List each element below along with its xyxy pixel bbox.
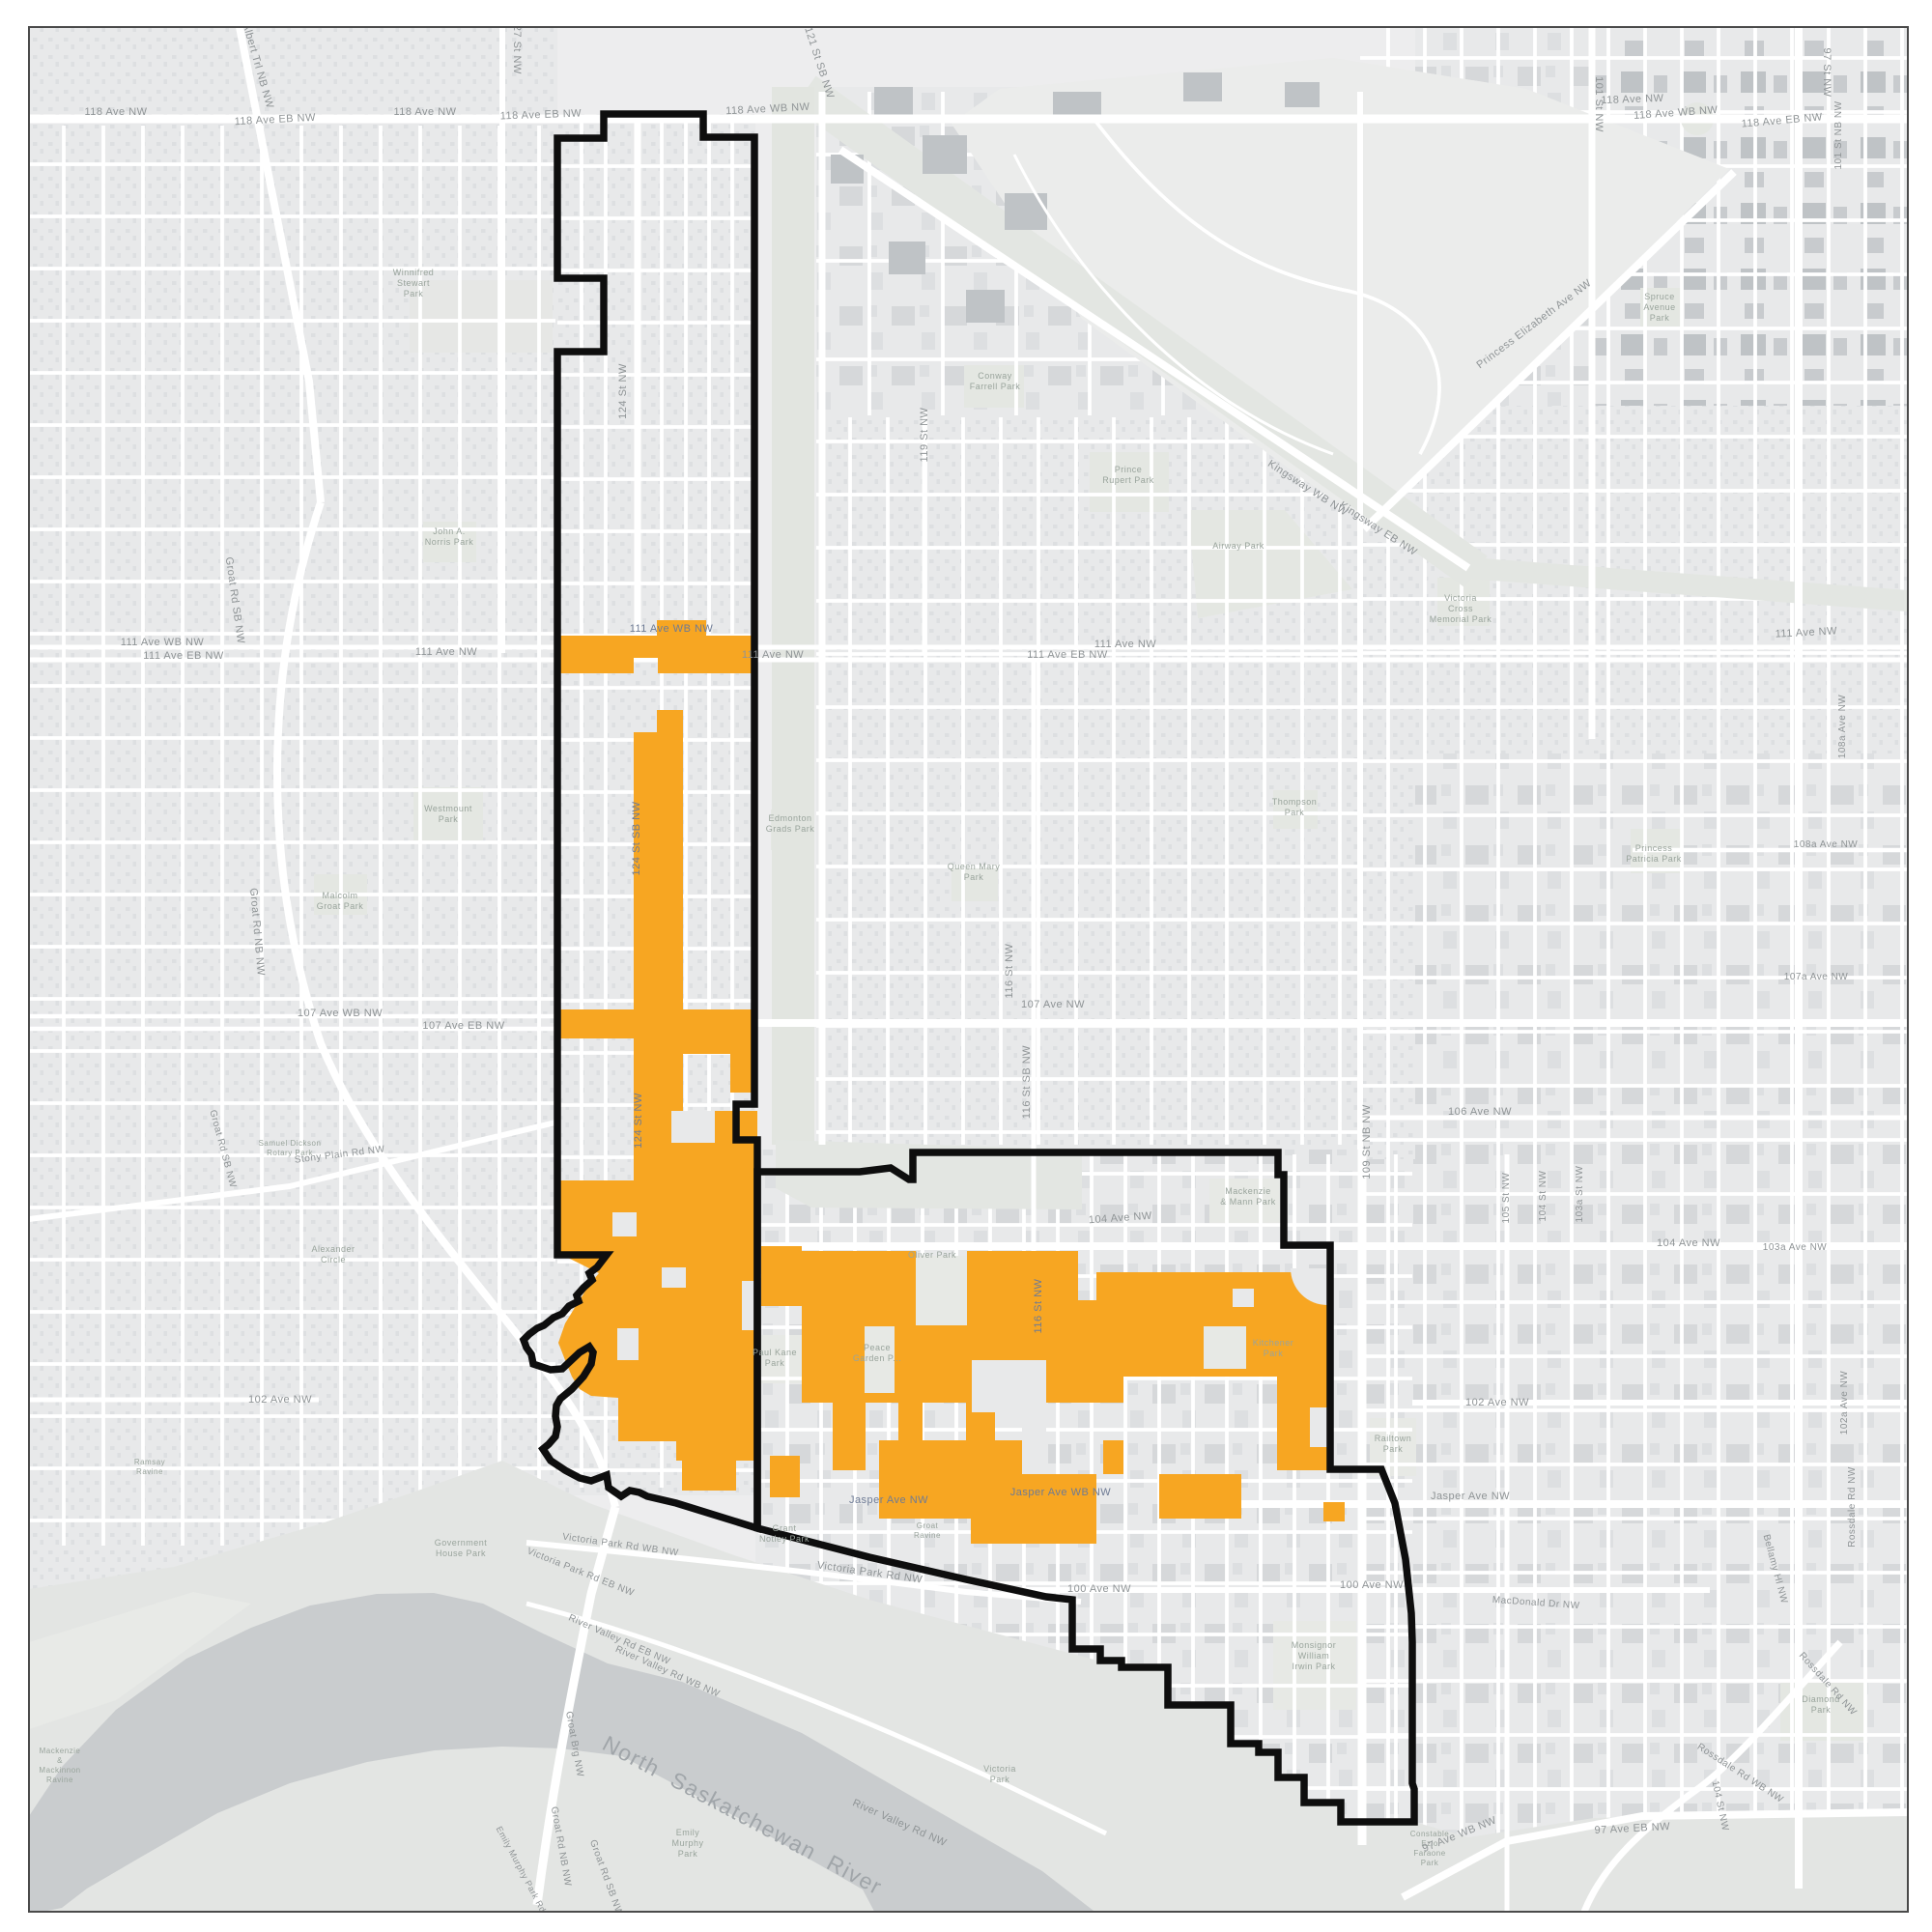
svg-text:Government: Government: [435, 1538, 488, 1548]
svg-text:Park: Park: [765, 1358, 785, 1368]
svg-text:100 Ave NW: 100 Ave NW: [1067, 1583, 1131, 1595]
svg-text:Ravine: Ravine: [46, 1776, 73, 1784]
svg-text:Spruce: Spruce: [1644, 292, 1675, 301]
svg-text:118 Ave NW: 118 Ave NW: [1601, 93, 1664, 106]
svg-text:106 Ave NW: 106 Ave NW: [1448, 1106, 1512, 1118]
svg-text:111 Ave NW: 111 Ave NW: [742, 649, 804, 661]
svg-text:Westmount: Westmount: [424, 804, 472, 813]
svg-text:Park: Park: [1285, 808, 1305, 817]
svg-text:124 St NW: 124 St NW: [617, 363, 629, 419]
svg-text:105 St NW: 105 St NW: [1501, 1173, 1512, 1224]
svg-text:House Park: House Park: [436, 1548, 486, 1558]
svg-text:Princess: Princess: [1635, 843, 1673, 853]
svg-text:103a St NW: 103a St NW: [1575, 1165, 1585, 1222]
svg-text:Airway Park: Airway Park: [1212, 541, 1264, 551]
svg-text:Park: Park: [1383, 1444, 1404, 1454]
svg-text:Memorial Park: Memorial Park: [1430, 614, 1492, 624]
svg-text:William: William: [1298, 1651, 1330, 1661]
svg-text:102 Ave NW: 102 Ave NW: [1465, 1397, 1529, 1408]
svg-text:Park: Park: [678, 1849, 698, 1859]
svg-text:Park: Park: [404, 289, 424, 298]
svg-text:100 Ave NW: 100 Ave NW: [1340, 1579, 1404, 1591]
svg-text:Ramsay: Ramsay: [134, 1458, 165, 1466]
svg-text:111 Ave EB NW: 111 Ave EB NW: [1027, 649, 1108, 661]
svg-text:108a Ave NW: 108a Ave NW: [1837, 695, 1848, 759]
svg-text:John A.: John A.: [433, 526, 466, 536]
svg-text:Conway: Conway: [978, 371, 1012, 381]
svg-text:124 St SB NW: 124 St SB NW: [631, 801, 642, 875]
svg-text:107 Ave EB NW: 107 Ave EB NW: [422, 1020, 504, 1032]
svg-text:Winnifred: Winnifred: [393, 268, 435, 277]
svg-text:116 St NW: 116 St NW: [1033, 1278, 1044, 1333]
svg-text:Thompson: Thompson: [1272, 797, 1318, 807]
svg-text:Grads Park: Grads Park: [766, 824, 815, 834]
svg-text:118 Ave NW: 118 Ave NW: [84, 106, 147, 118]
svg-text:124 St NW: 124 St NW: [633, 1093, 644, 1149]
svg-text:Victoria: Victoria: [983, 1764, 1016, 1774]
svg-text:Alexander: Alexander: [311, 1244, 355, 1254]
svg-text:Park: Park: [1264, 1349, 1284, 1358]
svg-text:111 Ave WB NW: 111 Ave WB NW: [630, 623, 714, 635]
svg-text:& Mann Park: & Mann Park: [1220, 1197, 1276, 1207]
svg-text:Cross: Cross: [1448, 604, 1473, 613]
svg-text:Queen Mary: Queen Mary: [948, 862, 1001, 871]
svg-text:Jasper Ave WB NW: Jasper Ave WB NW: [1010, 1487, 1111, 1498]
svg-text:111 Ave NW: 111 Ave NW: [415, 646, 477, 658]
svg-text:Garden P...: Garden P...: [853, 1353, 901, 1363]
svg-text:Monsignor: Monsignor: [1292, 1640, 1337, 1650]
svg-text:&: &: [57, 1756, 63, 1765]
svg-text:Edmonton: Edmonton: [768, 813, 811, 823]
svg-text:Rupert Park: Rupert Park: [1102, 475, 1154, 485]
svg-text:111 Ave WB NW: 111 Ave WB NW: [121, 637, 205, 648]
svg-text:Grant: Grant: [772, 1523, 796, 1533]
svg-text:Mackenzie: Mackenzie: [1225, 1186, 1271, 1196]
svg-text:Notley Park: Notley Park: [759, 1534, 810, 1544]
svg-text:119 St NW: 119 St NW: [919, 407, 930, 462]
svg-text:Prince: Prince: [1115, 465, 1143, 474]
svg-text:118 Ave NW: 118 Ave NW: [393, 106, 456, 118]
svg-text:103a Ave NW: 103a Ave NW: [1763, 1242, 1828, 1253]
svg-text:108a Ave NW: 108a Ave NW: [1794, 839, 1859, 850]
svg-text:Ravine: Ravine: [914, 1531, 941, 1540]
svg-text:Circle: Circle: [321, 1255, 346, 1264]
svg-text:109 St NB NW: 109 St NB NW: [1361, 1104, 1373, 1179]
svg-text:104 St NW: 104 St NW: [1538, 1171, 1548, 1222]
svg-text:Rotary Park: Rotary Park: [267, 1149, 313, 1157]
svg-text:Avenue: Avenue: [1643, 302, 1675, 312]
svg-text:Samuel Dickson: Samuel Dickson: [259, 1139, 322, 1148]
svg-text:Park: Park: [990, 1775, 1010, 1784]
svg-text:Emily: Emily: [676, 1828, 700, 1837]
svg-text:Norris Park: Norris Park: [425, 537, 474, 547]
svg-text:107 Ave WB NW: 107 Ave WB NW: [298, 1008, 383, 1019]
svg-text:Stewart: Stewart: [397, 278, 430, 288]
svg-text:107 Ave NW: 107 Ave NW: [1021, 999, 1085, 1010]
svg-text:Peace: Peace: [864, 1343, 891, 1352]
svg-text:Paul Kane: Paul Kane: [753, 1348, 797, 1357]
svg-text:102 Ave NW: 102 Ave NW: [248, 1394, 312, 1406]
svg-text:111 Ave EB NW: 111 Ave EB NW: [143, 650, 224, 662]
svg-text:Park: Park: [1421, 1859, 1439, 1867]
svg-text:104 Ave NW: 104 Ave NW: [1657, 1237, 1720, 1249]
svg-text:97 St NW: 97 St NW: [1821, 47, 1833, 97]
svg-text:Irwin Park: Irwin Park: [1292, 1662, 1335, 1671]
svg-text:Railtown: Railtown: [1375, 1434, 1412, 1443]
svg-text:Park: Park: [439, 814, 459, 824]
svg-text:102a Ave NW: 102a Ave NW: [1839, 1371, 1850, 1435]
svg-text:Kitchener: Kitchener: [1253, 1338, 1294, 1348]
svg-text:Victoria: Victoria: [1444, 593, 1477, 603]
svg-text:Jasper Ave NW: Jasper Ave NW: [1431, 1491, 1510, 1502]
svg-text:Rossdale Rd NW: Rossdale Rd NW: [1847, 1466, 1858, 1548]
svg-text:Mackenzie: Mackenzie: [40, 1747, 81, 1755]
svg-text:Park: Park: [1650, 313, 1670, 323]
svg-text:Murphy: Murphy: [671, 1838, 703, 1848]
svg-text:116 St NW: 116 St NW: [1004, 943, 1015, 998]
svg-text:Oliver Park: Oliver Park: [908, 1250, 956, 1260]
svg-text:Jasper Ave NW: Jasper Ave NW: [849, 1494, 928, 1506]
svg-text:Ravine: Ravine: [136, 1467, 163, 1476]
svg-text:116 St SB NW: 116 St SB NW: [1021, 1045, 1033, 1119]
svg-text:Groat Park: Groat Park: [317, 901, 364, 911]
svg-text:101 St NW: 101 St NW: [1593, 76, 1605, 132]
svg-text:Farrell Park: Farrell Park: [970, 382, 1021, 391]
svg-text:Park: Park: [1811, 1705, 1832, 1715]
svg-text:Mackinnon: Mackinnon: [39, 1766, 80, 1775]
svg-text:Patricia Park: Patricia Park: [1626, 854, 1682, 864]
svg-text:101 St NB NW: 101 St NB NW: [1833, 100, 1844, 169]
svg-text:111 Ave NW: 111 Ave NW: [1094, 639, 1156, 650]
svg-text:107a Ave NW: 107a Ave NW: [1784, 972, 1849, 982]
svg-text:Park: Park: [964, 872, 984, 882]
svg-text:Malcolm: Malcolm: [322, 891, 357, 900]
svg-text:Groat: Groat: [917, 1521, 939, 1530]
